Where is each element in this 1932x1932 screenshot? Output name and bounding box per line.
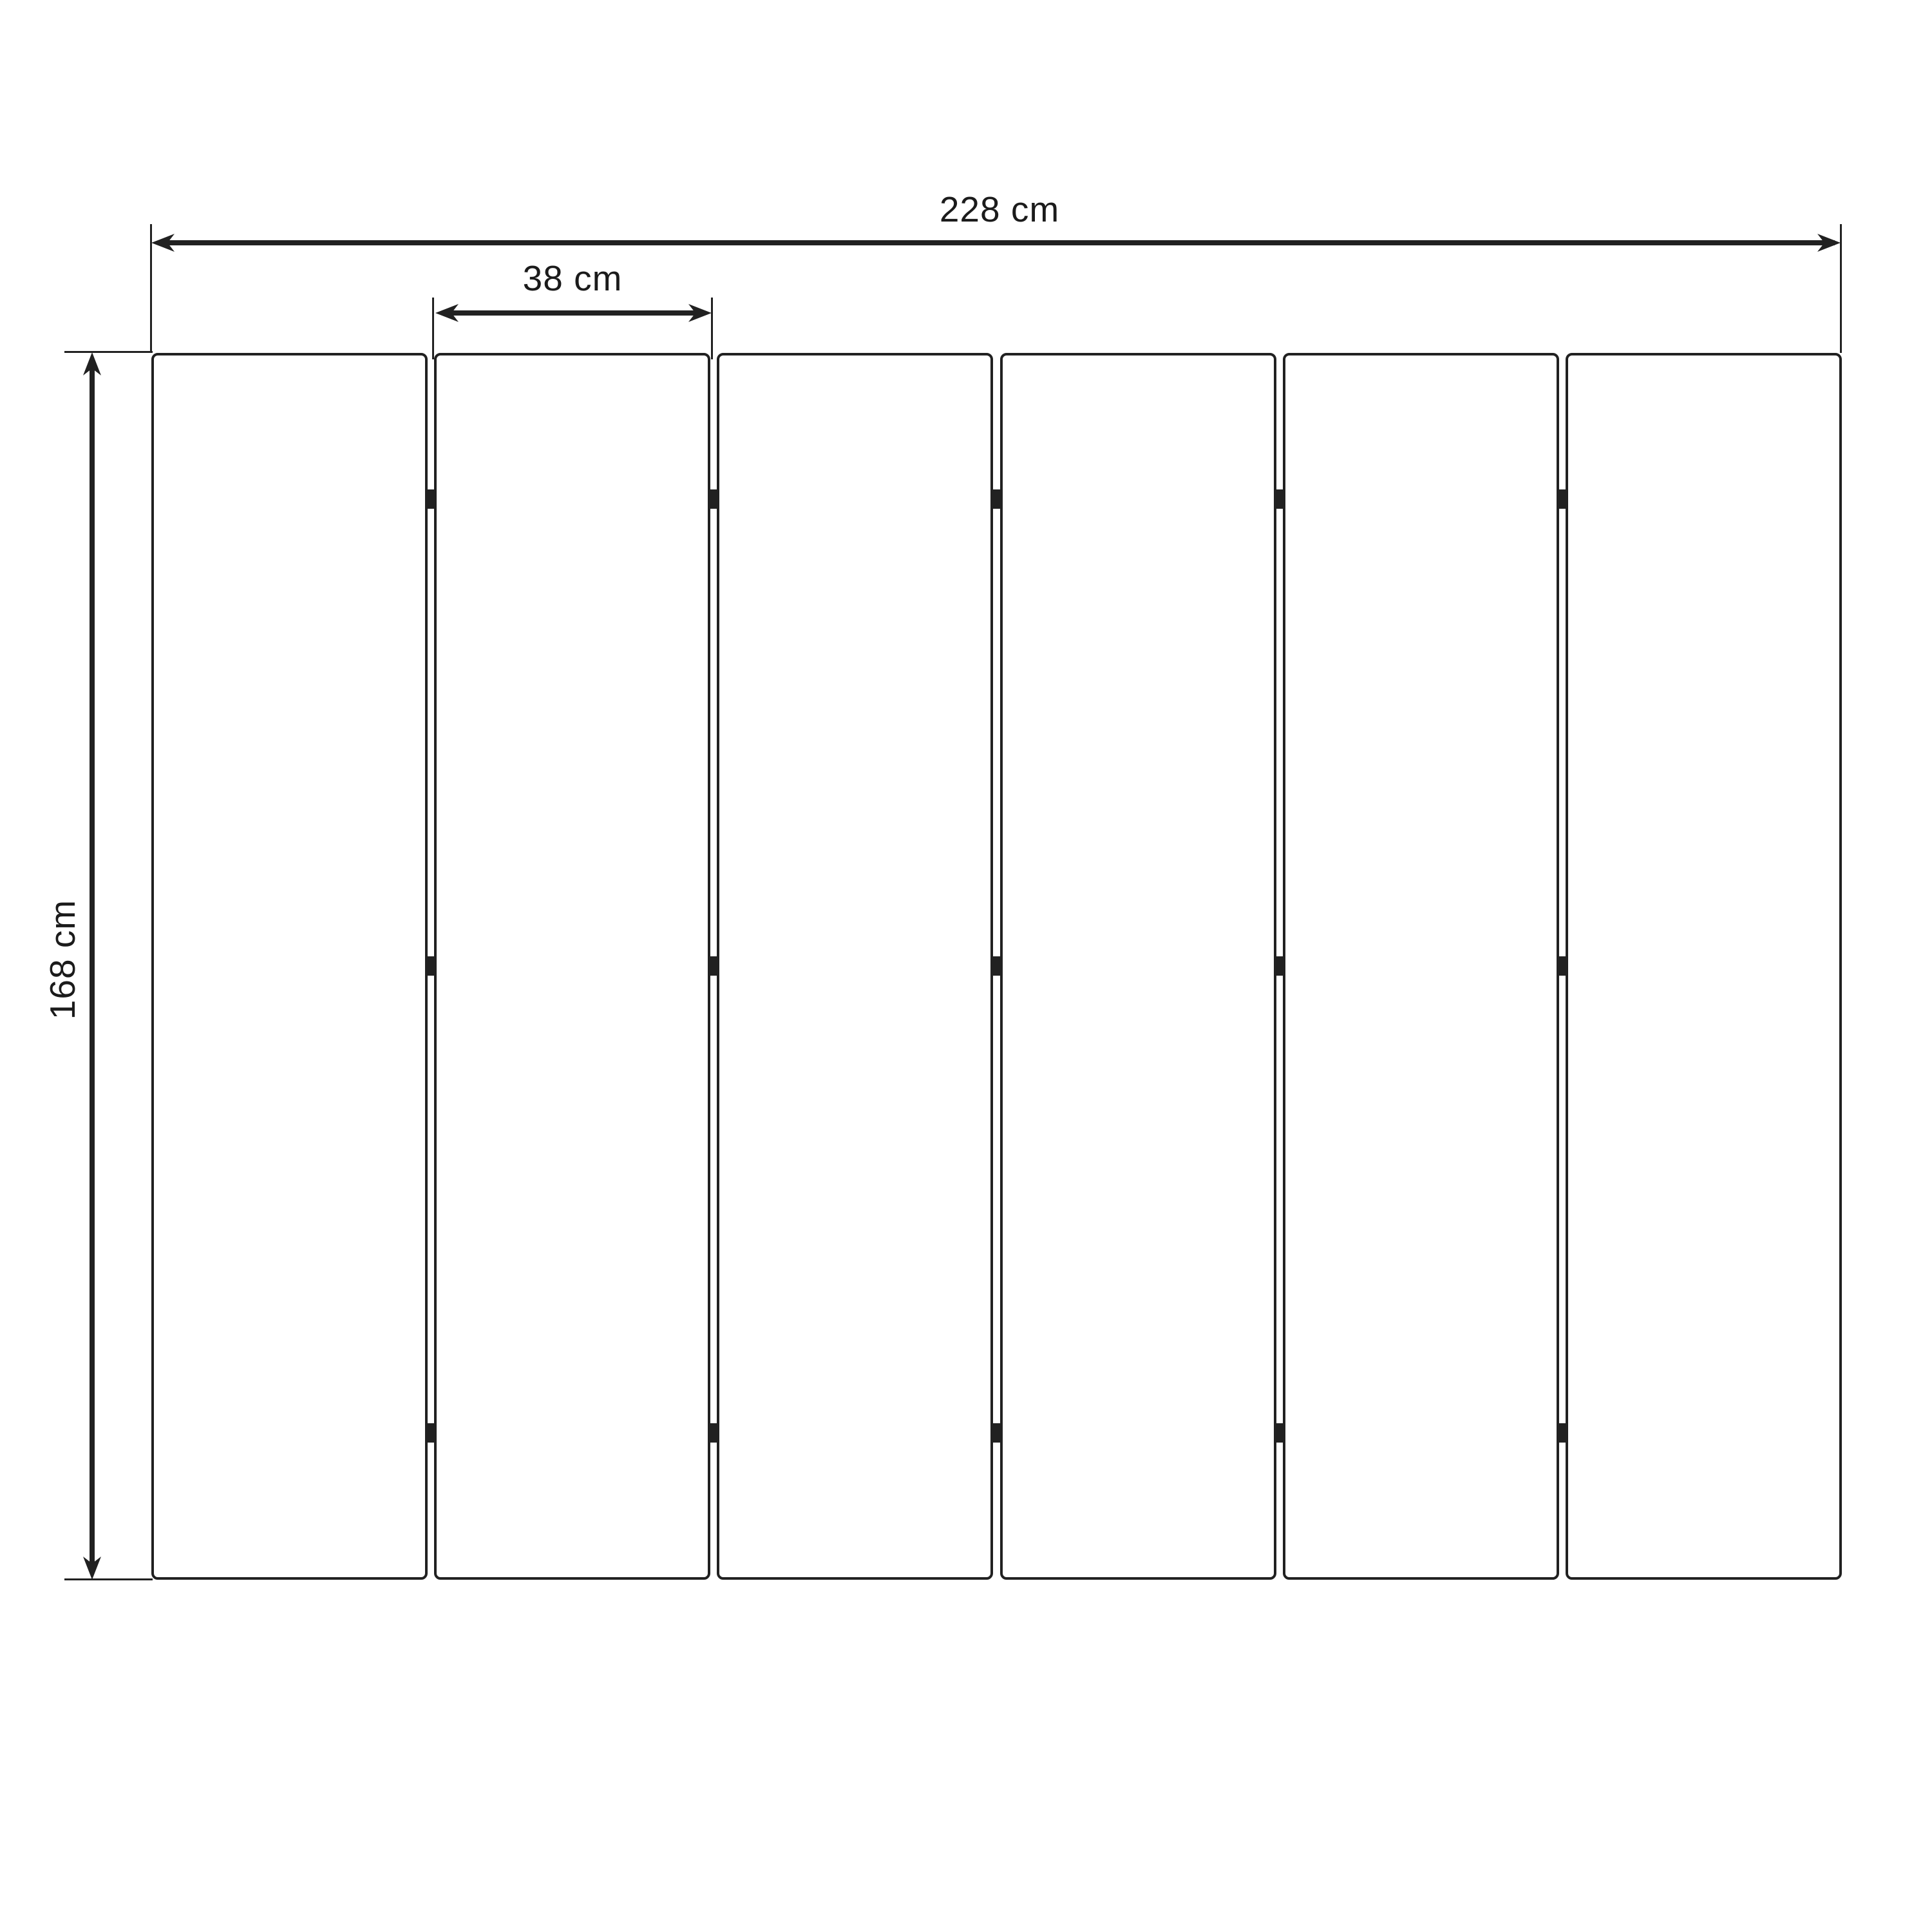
- height-label: 168 cm: [43, 863, 82, 1056]
- hinge-gap5-row3: [1558, 1423, 1567, 1443]
- screen-panel-4: [1000, 353, 1276, 1580]
- hinge-gap4-row1: [1275, 489, 1284, 509]
- dimension-line: [158, 240, 1835, 245]
- extension-line-right: [1840, 224, 1842, 353]
- extension-line-left: [432, 298, 434, 359]
- hinge-gap2-row1: [709, 489, 718, 509]
- hinge-gap4-row3: [1275, 1423, 1284, 1443]
- hinge-gap1-row2: [426, 956, 435, 976]
- hinge-gap4-row2: [1275, 956, 1284, 976]
- panel-dimension-diagram: 228 cm 38 cm 168 cm: [0, 0, 1932, 1932]
- hinge-gap1-row3: [426, 1423, 435, 1443]
- hinge-gap3-row1: [992, 489, 1001, 509]
- hinge-gap5-row2: [1558, 956, 1567, 976]
- total-width-label: 228 cm: [903, 190, 1096, 229]
- dimension-line: [442, 310, 703, 316]
- hinge-gap5-row1: [1558, 489, 1567, 509]
- screen-panel-3: [717, 353, 993, 1580]
- panel-width-label: 38 cm: [476, 259, 669, 298]
- hinge-gap2-row3: [709, 1423, 718, 1443]
- hinge-gap2-row2: [709, 956, 718, 976]
- screen-panel-2: [434, 353, 710, 1580]
- screen-panel-5: [1283, 353, 1559, 1580]
- hinge-gap3-row3: [992, 1423, 1001, 1443]
- hinge-gap3-row2: [992, 956, 1001, 976]
- extension-line-right: [711, 298, 713, 359]
- screen-panel-1: [151, 353, 428, 1580]
- extension-line-top: [64, 351, 153, 353]
- extension-line-left: [150, 224, 152, 353]
- dimension-line: [90, 359, 95, 1573]
- extension-line-bottom: [64, 1578, 153, 1580]
- hinge-gap1-row1: [426, 489, 435, 509]
- screen-panel-6: [1566, 353, 1842, 1580]
